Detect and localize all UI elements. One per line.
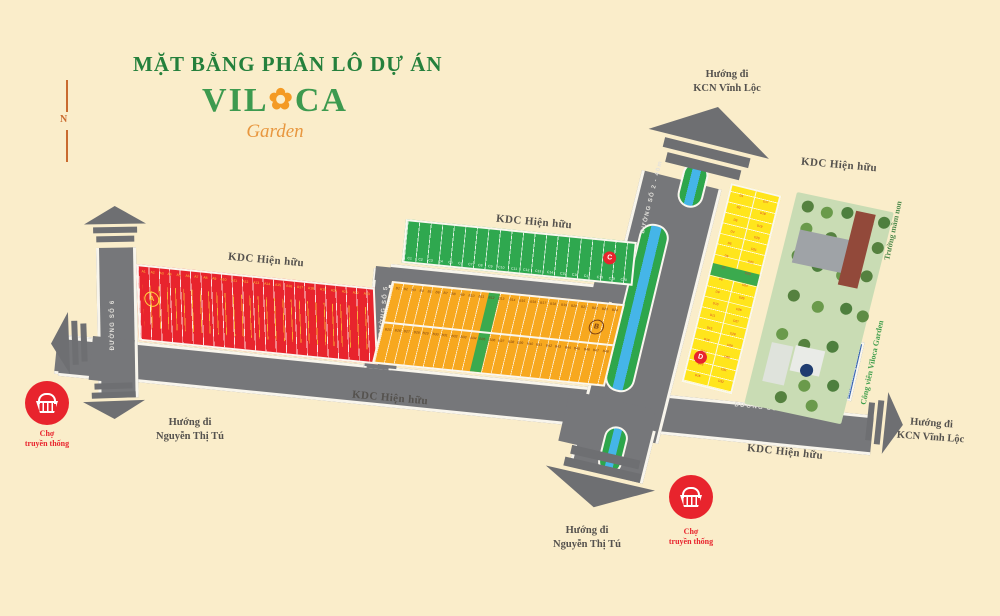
lot-number: B12 xyxy=(488,295,495,300)
lot-number: D16 xyxy=(694,373,700,378)
lot-number: B27 xyxy=(403,329,410,334)
intersection xyxy=(375,266,404,283)
lot-number: B7 xyxy=(443,291,448,296)
lot-number: D30 xyxy=(724,355,730,360)
lot-number: B9 xyxy=(460,292,465,297)
lot-number: D2 xyxy=(737,206,742,210)
logo-part2: CA xyxy=(295,82,348,119)
lot-number: C2 xyxy=(418,257,423,262)
lot-number: C15 xyxy=(559,271,566,276)
lot-number: D24 xyxy=(742,283,748,288)
lot-number: B42 xyxy=(545,343,552,348)
lot-number: A5 xyxy=(177,272,181,277)
lot-number: A15 xyxy=(275,282,281,287)
lot-number: D8 xyxy=(719,278,724,282)
lot-number: B10 xyxy=(468,293,475,298)
lot-number: A14 xyxy=(264,281,270,286)
compass-north-label: N xyxy=(60,114,67,125)
lot-number: B15 xyxy=(519,298,526,303)
lot-number: C20 xyxy=(621,277,628,282)
lot-number: D26 xyxy=(736,307,742,312)
market-line1: Chợ xyxy=(651,527,731,537)
lot-number: C19 xyxy=(608,276,615,281)
lot-number: D13 xyxy=(703,337,709,342)
lot-number: D28 xyxy=(730,331,736,336)
lot-number: B31 xyxy=(441,333,448,338)
lot-number: A1 xyxy=(141,269,145,274)
lot-number: D4 xyxy=(731,230,736,234)
lot-number: C1 xyxy=(408,256,413,261)
market-icon xyxy=(25,381,69,425)
lot-number: C3 xyxy=(428,258,433,263)
lot-number: C16 xyxy=(572,272,579,277)
market-line2: truyền thống xyxy=(7,439,87,449)
logo-flower-icon: ✿ xyxy=(269,84,295,116)
lot-number: B11 xyxy=(478,294,485,299)
lot-number: A16 xyxy=(286,283,292,288)
market-line1: Chợ xyxy=(7,429,87,439)
arrow-north-icon xyxy=(84,205,147,242)
arrow-west-icon xyxy=(50,311,88,374)
compass-needle xyxy=(66,130,68,162)
lot-number: B32 xyxy=(451,334,458,339)
market-icon xyxy=(669,475,713,519)
lot-number: B4 xyxy=(419,288,424,293)
project-logo: VIL✿CA xyxy=(180,82,370,120)
direction-line1: Hướng đi xyxy=(657,68,797,82)
lot-number: B29 xyxy=(422,331,429,336)
lot-number: D19 xyxy=(757,224,763,229)
lot-number: D18 xyxy=(760,212,766,217)
lot-number: A2 xyxy=(150,270,154,275)
direction-line2: Nguyễn Thị Tú xyxy=(120,430,260,444)
lot-number: C11 xyxy=(511,266,517,271)
lot-number: B30 xyxy=(432,332,439,337)
lot-number: D22 xyxy=(748,260,754,265)
basket-icon xyxy=(36,401,58,413)
lot-number: B6 xyxy=(435,290,440,295)
lot-number: D5 xyxy=(728,242,733,246)
building xyxy=(762,342,793,385)
lot-number: D1 xyxy=(740,194,745,198)
direction-line2: Nguyễn Thị Tú xyxy=(517,538,657,552)
lot-number: A6 xyxy=(185,273,189,278)
lot-number: B43 xyxy=(555,344,562,349)
lot-number: A7 xyxy=(194,274,198,279)
lot-number: C17 xyxy=(584,273,591,278)
lot-number: C4 xyxy=(438,259,443,264)
lot-number: A19 xyxy=(319,287,325,292)
lot-number: D29 xyxy=(727,343,733,348)
lot-number: B2 xyxy=(403,287,408,292)
lot-number: A8 xyxy=(203,275,207,280)
arrow-south-icon xyxy=(82,382,145,420)
lot-number: B46 xyxy=(583,347,590,352)
lot-number: B33 xyxy=(460,335,467,340)
direction-kcn-top: Hướng đi KCN Vĩnh Lộc xyxy=(657,68,797,95)
direction-line1: Hướng đi xyxy=(517,524,657,538)
lot-number: D23 xyxy=(745,271,751,276)
lot-number: C13 xyxy=(535,268,542,273)
lot-number: B1 xyxy=(395,286,400,291)
lot-number: B22 xyxy=(591,305,598,310)
lot-number: C18 xyxy=(596,275,603,280)
lot-number: B25 xyxy=(385,327,392,332)
lot-number: B17 xyxy=(540,300,547,305)
lot-number: D32 xyxy=(718,379,724,384)
trees xyxy=(800,199,815,213)
lot-number: C6 xyxy=(458,261,463,266)
lot-number: D6 xyxy=(725,254,730,258)
logo-subtitle: Garden xyxy=(180,121,370,143)
lot-number: B48 xyxy=(602,349,609,354)
lot-number: D9 xyxy=(716,290,721,294)
lot-number: B24 xyxy=(612,307,619,312)
lot-number: A12 xyxy=(242,279,248,284)
lot-number: B35 xyxy=(479,336,486,341)
lot-number: B21 xyxy=(581,304,588,309)
lot-number: A22 xyxy=(352,290,358,295)
basket-icon xyxy=(680,495,702,507)
lot-number: A10 xyxy=(221,277,227,282)
lot-number: C7 xyxy=(468,262,473,267)
lot-number: B47 xyxy=(593,348,600,353)
lot-number: A3 xyxy=(159,271,163,276)
lot-number: D25 xyxy=(739,295,745,300)
lot-number: D21 xyxy=(751,248,757,253)
lot-number: B36 xyxy=(489,337,496,342)
lot-number: B23 xyxy=(601,306,608,311)
lot-number: C14 xyxy=(547,270,554,275)
lot-number: B8 xyxy=(451,291,456,296)
lot-number: B44 xyxy=(564,345,571,350)
lot-number: A4 xyxy=(168,272,172,277)
lot-number: A11 xyxy=(232,278,238,283)
lot-number: D27 xyxy=(733,319,739,324)
lot-number: B3 xyxy=(411,287,416,292)
direction-nguyen-left: Hướng đi Nguyễn Thị Tú xyxy=(120,416,260,443)
lot-number: B5 xyxy=(427,289,432,294)
lot-number: D3 xyxy=(734,218,739,222)
lot-number: A13 xyxy=(253,280,259,285)
lot-number: B19 xyxy=(560,302,567,307)
lot-number: B40 xyxy=(526,341,533,346)
lot-number: A23 xyxy=(363,291,369,296)
market-line2: truyền thống xyxy=(651,537,731,547)
direction-line2: KCN Vĩnh Lộc xyxy=(657,82,797,96)
page-title: MẶT BẰNG PHÂN LÔ DỰ ÁN xyxy=(133,52,443,77)
market-label-bottom: Chợ truyền thống xyxy=(651,527,731,548)
kdc-label-above-a: KDC Hiện hữu xyxy=(228,251,305,270)
lot-number: D20 xyxy=(754,236,760,241)
lot-number: D12 xyxy=(706,325,712,330)
lot-number: B16 xyxy=(529,299,536,304)
lot-number: A21 xyxy=(341,289,347,294)
lot-number: A9 xyxy=(212,276,216,281)
lot-number: D11 xyxy=(709,313,715,318)
lot-number: C5 xyxy=(448,260,453,265)
lot-number: B45 xyxy=(574,346,581,351)
lot-number: D17 xyxy=(762,200,768,205)
road-label-left: ĐƯỜNG SỐ 6 xyxy=(110,285,116,365)
logo-part1: VIL xyxy=(202,82,268,119)
lot-number: D31 xyxy=(721,367,727,372)
lot-number: C12 xyxy=(523,267,530,272)
lot-number: C8 xyxy=(478,263,483,268)
lot-number: C9 xyxy=(488,264,493,269)
lot-number: B20 xyxy=(570,303,577,308)
lot-number: B28 xyxy=(413,330,420,335)
lot-number: B18 xyxy=(550,301,557,306)
market-label-left: Chợ truyền thống xyxy=(7,429,87,450)
lot-number: B26 xyxy=(394,328,401,333)
lot-number: B34 xyxy=(470,335,477,340)
lot-number: B13 xyxy=(498,296,505,301)
site-plan-map: MẶT BẰNG PHÂN LÔ DỰ ÁN VIL✿CA Garden N Đ… xyxy=(0,0,1000,616)
lot-number: B37 xyxy=(498,338,505,343)
lot-number: B14 xyxy=(509,297,516,302)
compass-needle xyxy=(66,80,68,112)
lot-number: D7 xyxy=(722,266,727,270)
lot-number: B38 xyxy=(507,339,514,344)
direction-nguyen-bottom: Hướng đi Nguyễn Thị Tú xyxy=(517,524,657,551)
kdc-label-top-right: KDC Hiện hữu xyxy=(801,156,878,175)
direction-line1: Hướng đi xyxy=(120,416,260,430)
lot-number: B39 xyxy=(517,340,524,345)
lot-number: A18 xyxy=(308,286,314,291)
lot-number: C10 xyxy=(498,265,505,270)
lot-number: D10 xyxy=(712,301,718,306)
lot-number: B41 xyxy=(536,342,543,347)
lot-number: A20 xyxy=(330,288,336,293)
lot-number: A17 xyxy=(297,285,303,290)
